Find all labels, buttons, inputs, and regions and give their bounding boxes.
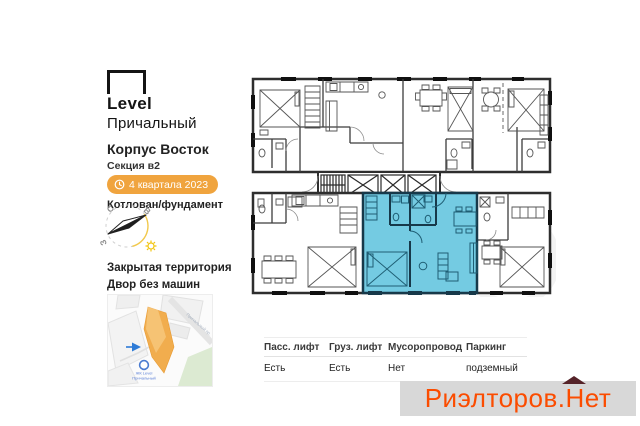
spec-value: Есть — [329, 363, 350, 374]
compass-needle-icon — [108, 215, 146, 234]
compass-west: З — [99, 238, 109, 247]
compass-north: С — [105, 203, 116, 215]
listing-floorplan-page: { "sidebar": { "logo": { "brand": "Level… — [0, 0, 640, 426]
watermark-prefix: Риэлторов. — [425, 383, 566, 413]
watermark-text: Риэлторов.Нет — [425, 383, 612, 414]
top-row-apartments — [253, 79, 550, 172]
compass: С В З — [99, 200, 161, 256]
watermark-suffix-wrap: Нет — [565, 383, 611, 414]
spec-value: Есть — [264, 363, 285, 374]
spec-label: Паркинг — [466, 342, 506, 353]
badge-label: 4 квартала 2023 — [129, 179, 208, 191]
feature-closed-territory: Закрытая территория — [107, 262, 232, 274]
floorplan-image[interactable]: А — [250, 75, 556, 297]
brand-logo: Level Причальный — [107, 70, 197, 132]
watermark: Риэлторов.Нет — [400, 381, 636, 416]
compass-east: В — [142, 205, 153, 217]
spec-value: Нет — [388, 363, 405, 374]
map-park — [178, 347, 212, 386]
watermark-suffix: Нет — [565, 383, 611, 413]
feature-no-cars: Двор без машин — [107, 279, 200, 291]
spec-label: Пасс. лифт — [264, 342, 319, 353]
logo-bracket-icon — [107, 70, 146, 94]
sidebar: Level Причальный Корпус Восток Секция в2… — [0, 0, 250, 426]
table-rule-middle — [264, 356, 527, 357]
spec-label: Мусоропровод — [388, 342, 462, 353]
completion-badge: 4 квартала 2023 — [107, 175, 218, 194]
spec-value: подземный — [466, 363, 518, 374]
specs-table: Пасс. лифт Есть Груз. лифт Есть Мусоропр… — [264, 337, 527, 382]
roof-icon — [562, 376, 586, 384]
spec-label: Груз. лифт — [329, 342, 382, 353]
minimap: ЖК Level Причальный Причальный пр. — [107, 294, 213, 387]
map-poi-label-2: Причальный — [132, 376, 155, 381]
project-name: Причальный — [107, 115, 197, 132]
highlighted-apartment — [363, 193, 477, 293]
map-poi-icon — [140, 361, 149, 370]
clock-icon — [114, 179, 125, 190]
table-rule-top — [264, 337, 527, 338]
sun-icon — [146, 241, 157, 252]
section-label: Секция в2 — [107, 160, 160, 172]
building-title: Корпус Восток — [107, 141, 209, 157]
brand-name: Level — [107, 95, 197, 112]
